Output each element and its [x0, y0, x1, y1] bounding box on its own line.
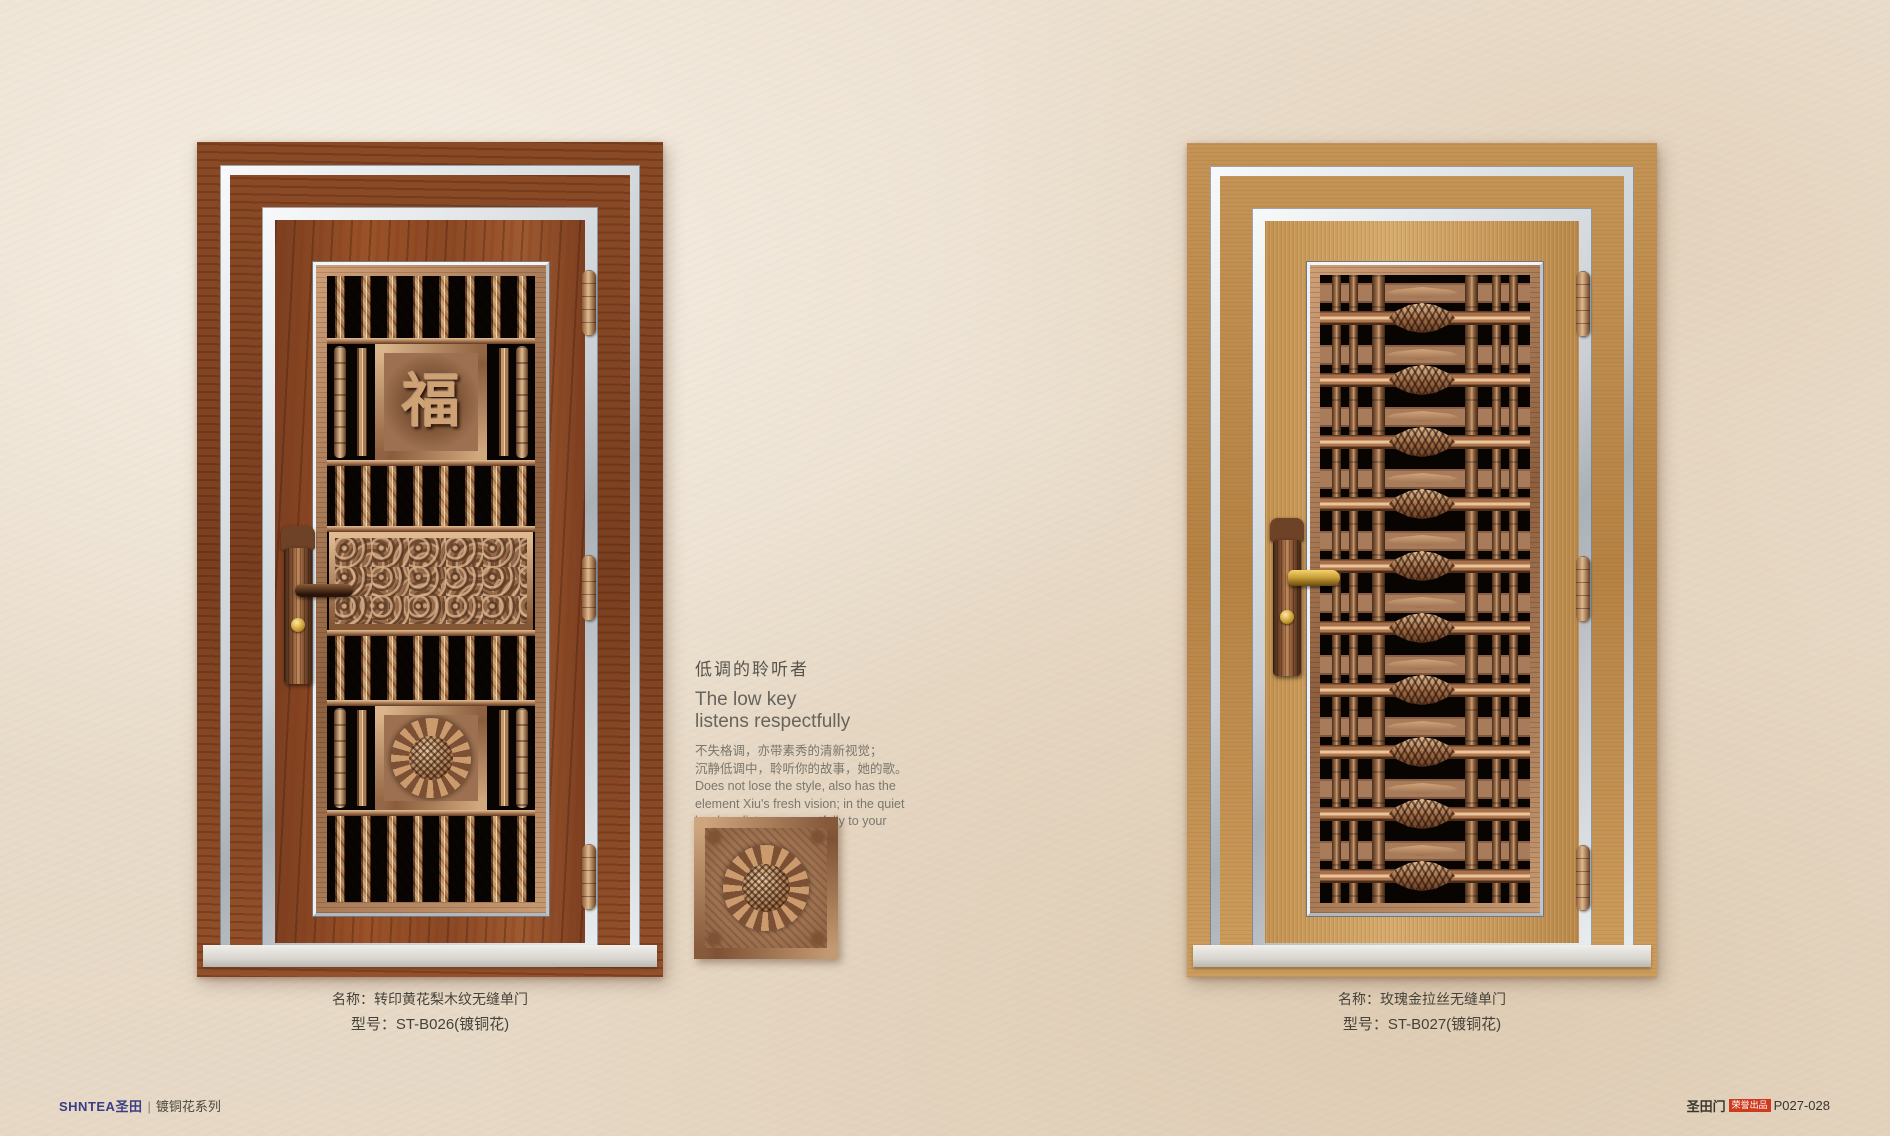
- brand-logo: SHNTEA圣田: [59, 1099, 142, 1114]
- corner-ornament: [807, 928, 829, 950]
- hinge-bottom: [1576, 845, 1590, 911]
- handle-crown-ornament: [281, 526, 315, 550]
- series-name: 镀铜花系列: [156, 1099, 221, 1114]
- page-number: P027-028: [1774, 1098, 1830, 1113]
- fu-character: 福: [402, 373, 460, 431]
- left-door-name: 名称：转印黄花梨木纹无缝单门: [197, 986, 663, 1012]
- sunflower-core: [742, 864, 790, 912]
- center-title-en-line1: The low key: [695, 689, 915, 711]
- body-en-line1: Does not lose the style, also has the: [695, 778, 915, 796]
- grille-mini-bars: [349, 710, 371, 806]
- corner-ornament: [703, 826, 725, 848]
- baluster-column: [334, 708, 346, 808]
- right-door-sill: [1193, 945, 1651, 967]
- grille-bars-section: [327, 816, 535, 902]
- baluster-column: [334, 346, 346, 458]
- sunflower-detail-square: [694, 817, 838, 959]
- sunflower-medallion-panel: [375, 706, 487, 810]
- center-title-en-line2: listens respectfully: [695, 711, 915, 733]
- baluster-column: [516, 346, 528, 458]
- right-door-handle: [1270, 518, 1304, 676]
- left-door-model: 型号：ST-B026(镀铜花): [197, 1012, 663, 1038]
- footer-left: SHNTEA圣田|镀铜花系列: [59, 1096, 221, 1115]
- catalog-page: 福: [0, 0, 1890, 1136]
- hinge-middle: [582, 555, 596, 621]
- cloud-relief-panel: [329, 532, 533, 630]
- left-door: 福: [197, 142, 663, 977]
- grille-bars-section: [327, 636, 535, 700]
- left-door-caption: 名称：转印黄花梨木纹无缝单门 型号：ST-B026(镀铜花): [197, 986, 663, 1038]
- handle-lever: [295, 584, 353, 597]
- right-door-caption: 名称：玫瑰金拉丝无缝单门 型号：ST-B027(镀铜花): [1187, 986, 1657, 1038]
- footer-right: 圣田门 荣誉出品 P027-028: [1687, 1096, 1830, 1115]
- handle-lever: [1288, 570, 1340, 586]
- footer-divider: |: [147, 1099, 150, 1114]
- grille-bars-section: [327, 466, 535, 526]
- grille-mini-bars: [349, 348, 371, 456]
- right-door-model: 型号：ST-B027(镀铜花): [1187, 1012, 1657, 1038]
- sunflower-petals: [391, 718, 471, 798]
- right-door-grille: [1307, 262, 1543, 916]
- sunflower-core: [409, 736, 453, 780]
- hinge-top: [1576, 271, 1590, 337]
- fu-medallion-row: 福: [327, 344, 535, 460]
- left-door-sill: [203, 945, 657, 967]
- fu-medallion-panel: 福: [375, 344, 487, 460]
- left-grille-body: 福: [327, 276, 535, 902]
- brand-name: 圣田门: [1687, 1096, 1726, 1115]
- right-door-name: 名称：玫瑰金拉丝无缝单门: [1187, 986, 1657, 1012]
- keyhole: [1280, 610, 1294, 624]
- left-door-handle: [281, 526, 315, 684]
- grille-mini-bars: [491, 348, 513, 456]
- sunflower-petals: [723, 845, 809, 931]
- handle-crown-ornament: [1270, 518, 1304, 542]
- center-title-zh: 低调的聆听者: [695, 655, 915, 680]
- right-grille-body: [1320, 275, 1530, 903]
- hinge-middle: [1576, 556, 1590, 622]
- handle-plate: [284, 548, 312, 684]
- hinge-top: [582, 270, 596, 336]
- keyhole: [291, 618, 305, 632]
- grille-bars-section: [327, 276, 535, 338]
- grille-mini-bars: [491, 710, 513, 806]
- sunflower-medallion-row: [327, 706, 535, 810]
- handle-plate: [1273, 540, 1301, 676]
- baluster-column: [516, 708, 528, 808]
- body-zh-line1: 不失格调，亦带素秀的清新视觉；: [695, 743, 915, 761]
- brand-badge: 荣誉出品: [1729, 1099, 1771, 1112]
- body-zh-line2: 沉静低调中，聆听你的故事，她的歌。: [695, 761, 915, 779]
- right-door: [1187, 143, 1657, 977]
- body-en-line2: element Xiu's fresh vision; in the quiet: [695, 796, 915, 814]
- corner-ornament: [807, 826, 829, 848]
- corner-ornament: [703, 928, 725, 950]
- hinge-bottom: [582, 844, 596, 910]
